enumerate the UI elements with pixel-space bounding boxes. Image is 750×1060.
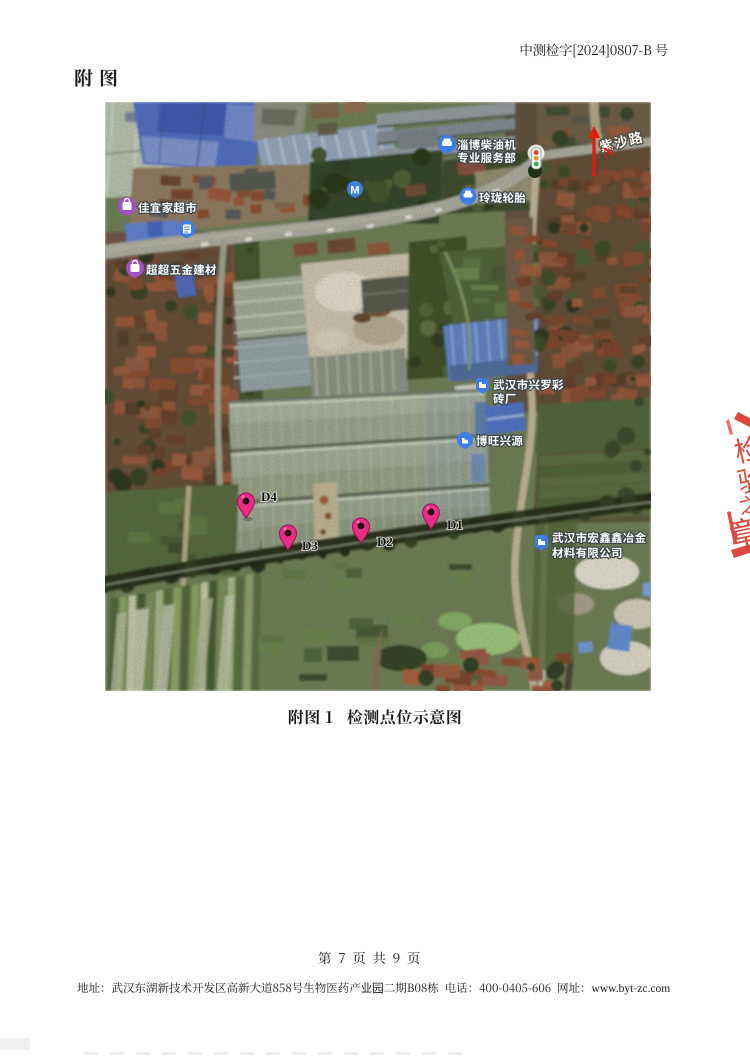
- svg-text:超超五金建材: 超超五金建材: [146, 262, 217, 278]
- svg-text:D3: D3: [302, 538, 318, 553]
- svg-text:D1: D1: [447, 517, 463, 532]
- svg-text:博旺兴源: 博旺兴源: [476, 433, 523, 449]
- svg-text:材料有限公司: 材料有限公司: [552, 545, 623, 561]
- svg-text:砖厂: 砖厂: [493, 391, 517, 407]
- svg-text:玲珑轮胎: 玲珑轮胎: [479, 190, 526, 206]
- svg-text:D4: D4: [261, 489, 277, 504]
- svg-text:检: 检: [731, 432, 750, 470]
- svg-text:佳宜家超市: 佳宜家超市: [138, 200, 197, 216]
- svg-text:D2: D2: [377, 534, 393, 549]
- svg-text:专业服务部: 专业服务部: [457, 150, 516, 166]
- svg-text:武汉市宏鑫鑫冶金: 武汉市宏鑫鑫冶金: [552, 530, 647, 546]
- svg-text:验: 验: [734, 462, 750, 500]
- svg-text:M: M: [350, 182, 359, 198]
